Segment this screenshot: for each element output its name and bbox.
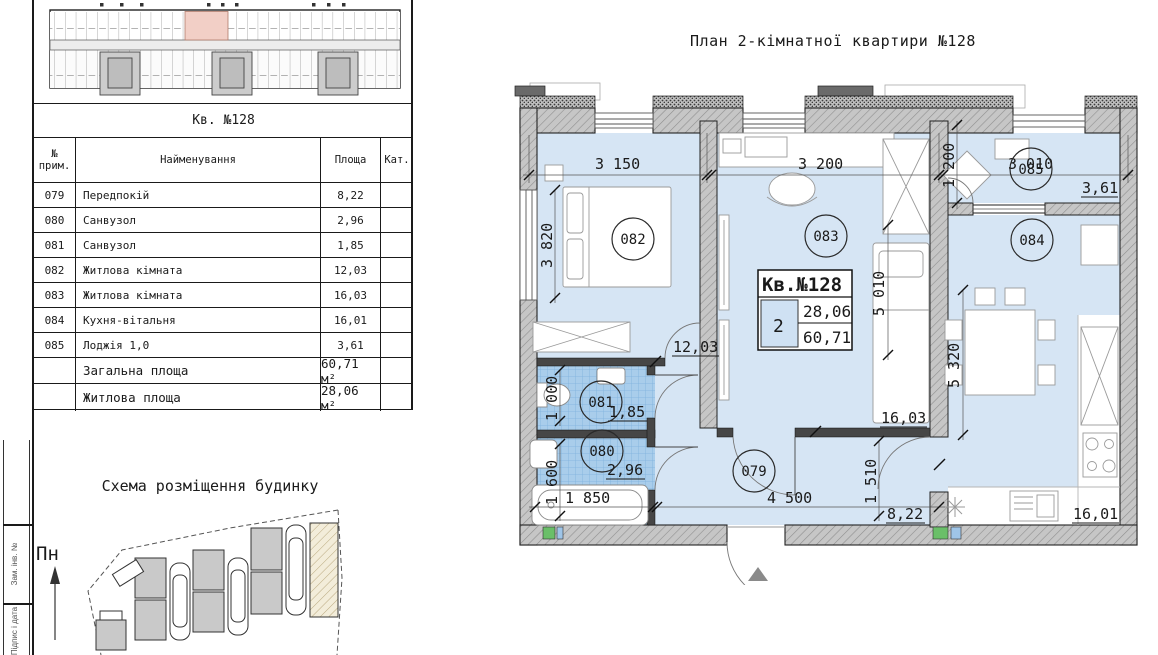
info-total-area: 60,71 — [803, 328, 851, 347]
row-area: 8,22 — [321, 183, 381, 208]
site-buildings — [96, 523, 338, 650]
drawing-sheet: Зам. інв. № Підпис і дата — [0, 0, 1158, 655]
row-num: 084 — [34, 308, 76, 333]
highlighted-apartment — [185, 12, 228, 41]
north-arrow-icon — [50, 566, 60, 640]
dim-hall-depth: 1 510 — [862, 459, 880, 504]
row-name: Передпокій — [76, 183, 321, 208]
entrance-marker-icon — [748, 567, 768, 581]
row-area: 16,01 — [321, 308, 381, 333]
row-area: 2,96 — [321, 208, 381, 233]
info-title: Кв.№128 — [762, 274, 842, 296]
building-floor-overview — [33, 0, 412, 103]
col-header-num: № прим. — [34, 138, 76, 183]
row-num: 079 — [34, 183, 76, 208]
column-dots — [100, 3, 346, 7]
dim-loggia-depth: 1 200 — [940, 143, 958, 188]
asterisk-symbol — [945, 497, 965, 517]
row-area: 1,85 — [321, 233, 381, 258]
total-num — [34, 358, 76, 384]
apartment-table: Кв. №128 № прим. Найменування Площа Кат.… — [33, 103, 412, 410]
room-number: 080 — [589, 444, 614, 460]
row-name: Житлова кімната — [76, 258, 321, 283]
dim-top-2: 3 200 — [798, 155, 843, 173]
row-num: 080 — [34, 208, 76, 233]
room-number: 083 — [813, 229, 838, 245]
room-area: 1,85 — [609, 403, 645, 421]
dim-bath2-depth: 1 000 — [543, 376, 561, 421]
total-num — [34, 384, 76, 411]
row-cat — [381, 233, 413, 258]
total-cat — [381, 358, 413, 384]
info-living-area: 28,06 — [803, 302, 851, 321]
room-area: 2,96 — [607, 461, 643, 479]
room-area: 8,22 — [887, 505, 923, 523]
dim-top-1: 3 150 — [595, 155, 640, 173]
row-cat — [381, 258, 413, 283]
row-cat — [381, 283, 413, 308]
info-rooms-count: 2 — [773, 316, 784, 337]
site-plan: Пн — [0, 470, 430, 655]
col-header-name: Найменування — [76, 138, 321, 183]
total-area: 60,71 м² — [321, 358, 381, 384]
row-cat — [381, 333, 413, 358]
row-area: 16,03 — [321, 283, 381, 308]
row-name: Лоджія 1,0 — [76, 333, 321, 358]
apartment-info-block: Кв.№128 2 28,06 60,71 — [758, 270, 852, 350]
row-name: Житлова кімната — [76, 283, 321, 308]
room-area: 12,03 — [673, 338, 718, 356]
row-cat — [381, 308, 413, 333]
room-number: 082 — [620, 232, 645, 248]
row-area: 12,03 — [321, 258, 381, 283]
page-title: План 2-кімнатної квартири №128 — [668, 32, 998, 50]
row-name: Санвузол — [76, 208, 321, 233]
row-cat — [381, 183, 413, 208]
row-area: 3,61 — [321, 333, 381, 358]
room-number: 084 — [1019, 233, 1044, 249]
row-num: 082 — [34, 258, 76, 283]
dim-bath-width: 1 850 — [565, 489, 610, 507]
floor-plan: 3 150 3 200 3 010 1 200 3 820 5 010 5 32… — [505, 75, 1155, 585]
room-number: 085 — [1018, 162, 1043, 178]
row-num: 081 — [34, 233, 76, 258]
row-num: 083 — [34, 283, 76, 308]
room-area: 3,61 — [1082, 179, 1118, 197]
room-area: 16,03 — [881, 409, 926, 427]
total-name: Житлова площа — [76, 384, 321, 411]
total-area: 28,06 м² — [321, 384, 381, 411]
room-area: 16,01 — [1073, 505, 1118, 523]
row-name: Санвузол — [76, 233, 321, 258]
dim-bedroom2-depth: 5 010 — [870, 271, 888, 316]
total-name: Загальна площа — [76, 358, 321, 384]
col-header-cat: Кат. — [381, 138, 413, 183]
dim-bedroom1-depth: 3 820 — [538, 223, 556, 268]
dim-kitchen-depth: 5 320 — [945, 343, 963, 388]
insulation-strip — [520, 96, 1137, 108]
total-cat — [381, 384, 413, 411]
north-label: Пн — [36, 543, 59, 565]
col-header-area: Площа — [321, 138, 381, 183]
table-title: Кв. №128 — [34, 104, 413, 138]
room-number: 079 — [741, 464, 766, 480]
row-num: 085 — [34, 333, 76, 358]
row-name: Кухня-вітальня — [76, 308, 321, 333]
stair-cores — [100, 52, 358, 95]
dim-hall-width: 4 500 — [767, 489, 812, 507]
row-cat — [381, 208, 413, 233]
dim-bath1-depth: 1 600 — [543, 460, 561, 505]
